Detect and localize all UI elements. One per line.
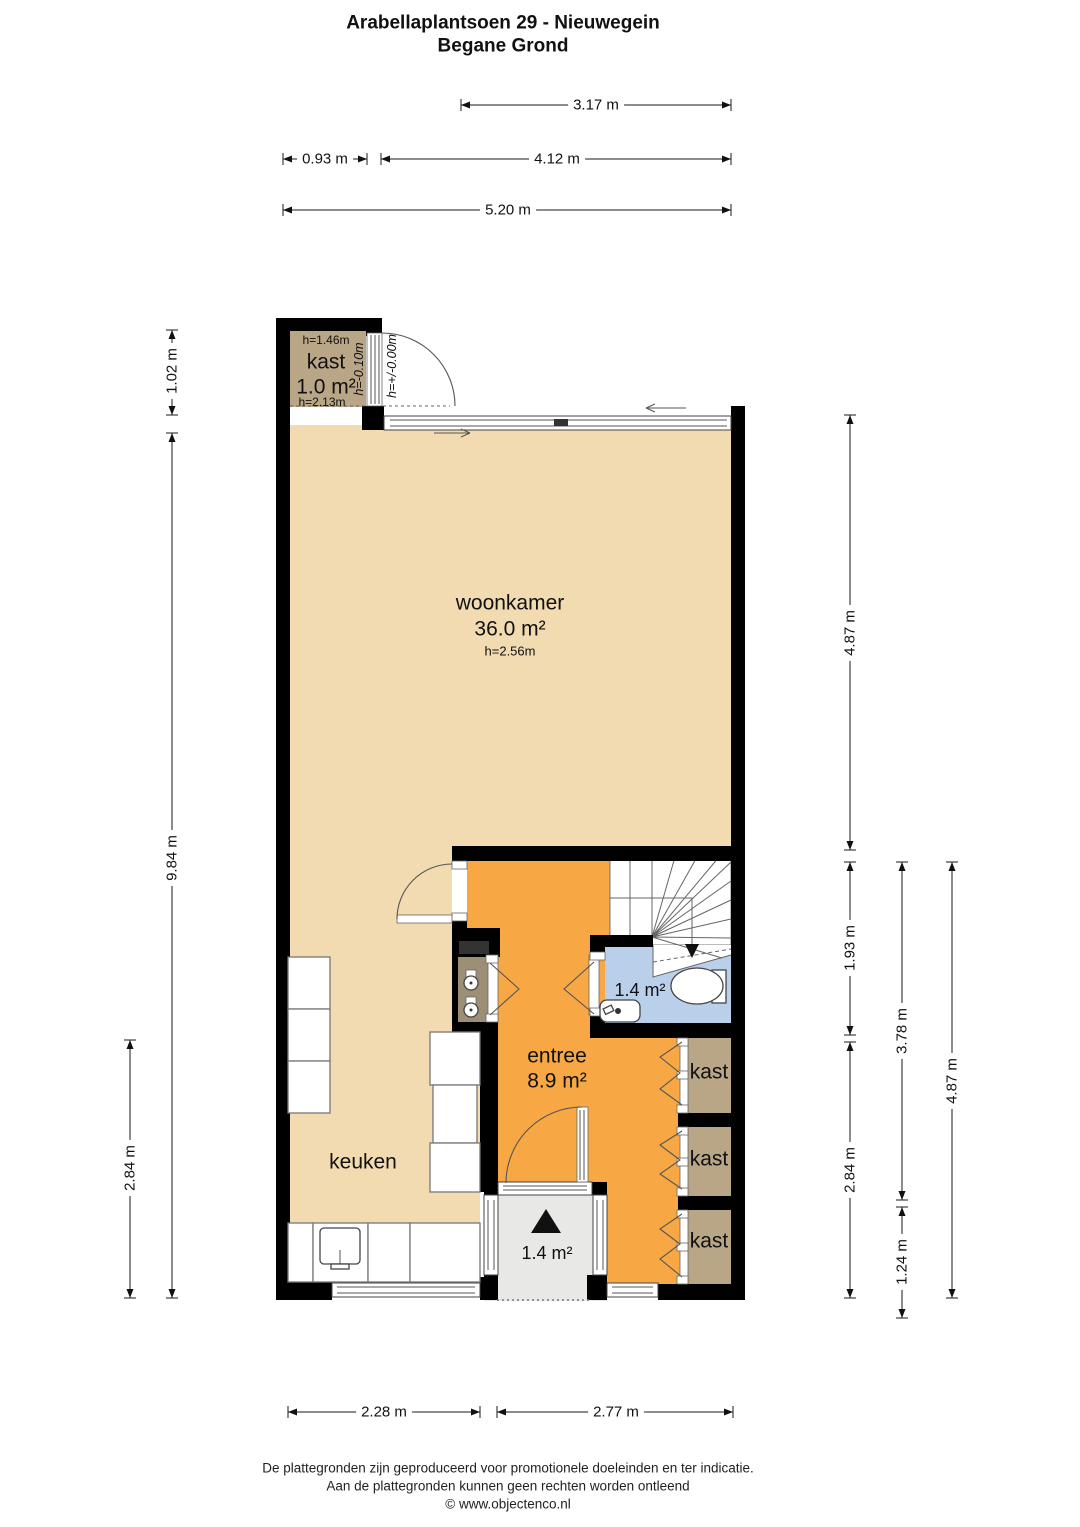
window-porch-left bbox=[484, 1195, 498, 1275]
dim-label-right-5: 4.87 m bbox=[945, 1053, 960, 1109]
dim-label-right-2: 2.84 m bbox=[843, 1142, 858, 1198]
dim-label-right-4: 1.24 m bbox=[895, 1234, 910, 1290]
storage-height-lower: h=2.13m bbox=[298, 396, 345, 408]
dim-label-left-0: 1.02 m bbox=[165, 343, 180, 399]
dim-label-bottom-0: 2.28 m bbox=[356, 1405, 412, 1420]
kitchen-room-name: keuken bbox=[329, 1152, 397, 1173]
porch-door-threshold bbox=[498, 1182, 592, 1195]
dim-label-right-3: 3.78 m bbox=[895, 1003, 910, 1059]
plan-title: Arabellaplantsoen 29 - Nieuwegein bbox=[346, 14, 660, 33]
porch-area: 1.4 m² bbox=[521, 1244, 572, 1262]
level-label-inner: h=-0.10m bbox=[353, 342, 366, 395]
footer-line-1: De plattegronden zijn geproduceerd voor … bbox=[262, 1461, 754, 1475]
hall-room-name: entree bbox=[527, 1046, 587, 1067]
slide-arrow-left-icon bbox=[646, 404, 686, 412]
living-room-area: 36.0 m² bbox=[474, 619, 545, 640]
dim-label-top-2: 4.12 m bbox=[529, 152, 585, 167]
closet3-name: kast bbox=[690, 1231, 729, 1252]
floorplan-page: Arabellaplantsoen 29 - Nieuwegein Begane… bbox=[0, 0, 1080, 1527]
dim-label-bottom-1: 2.77 m bbox=[588, 1405, 644, 1420]
hall-room-area: 8.9 m² bbox=[527, 1071, 587, 1092]
dim-label-top-1: 0.93 m bbox=[297, 152, 353, 167]
storage-room-name: kast bbox=[307, 352, 346, 373]
living-room-height: h=2.56m bbox=[485, 645, 536, 658]
window-kitchen-bottom bbox=[332, 1283, 480, 1297]
dim-label-left-2: 2.84 m bbox=[123, 1140, 138, 1196]
window-porch-right bbox=[593, 1195, 607, 1275]
closet1-name: kast bbox=[690, 1062, 729, 1083]
dim-label-right-1: 1.93 m bbox=[843, 920, 858, 976]
footer-line-2: Aan de plattegronden kunnen geen rechten… bbox=[326, 1479, 689, 1493]
level-label-outer: h=+/-0.00m bbox=[386, 334, 399, 398]
closet2-name: kast bbox=[690, 1149, 729, 1170]
floorplan-drawing bbox=[0, 0, 1080, 1527]
toilet-area: 1.4 m² bbox=[614, 981, 665, 999]
front-door-top bbox=[367, 333, 455, 406]
footer-line-3: © www.objectenco.nl bbox=[445, 1497, 571, 1511]
dim-label-top-0: 3.17 m bbox=[568, 98, 624, 113]
window-hall-bottom bbox=[607, 1283, 658, 1297]
toilet-bowl-icon bbox=[671, 968, 723, 1004]
dim-label-left-1: 9.84 m bbox=[165, 830, 180, 886]
dim-label-right-0: 4.87 m bbox=[843, 605, 858, 661]
living-room-name: woonkamer bbox=[456, 593, 565, 614]
dim-label-top-3: 5.20 m bbox=[480, 203, 536, 218]
plan-subtitle: Begane Grond bbox=[438, 37, 569, 56]
storage-height-upper: h=1.46m bbox=[302, 334, 349, 346]
window-livingroom-top bbox=[384, 416, 731, 430]
kitchen-sink-icon bbox=[320, 1228, 360, 1269]
toilet-sink-icon bbox=[600, 1000, 640, 1022]
